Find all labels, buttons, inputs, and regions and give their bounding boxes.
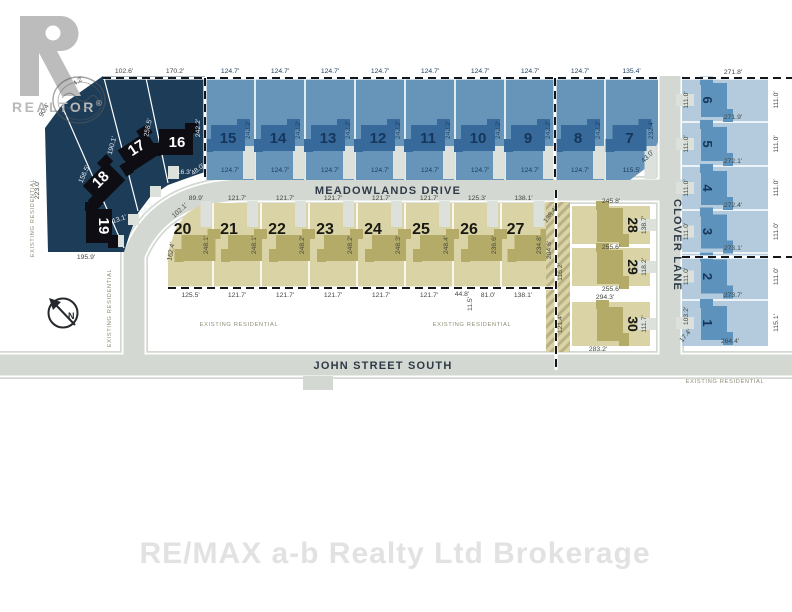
lot-number-1: 1 — [700, 319, 715, 326]
area-label-existing-residential-w2: EXISTING RESIDENTIAL — [107, 268, 113, 347]
measurement-label: 124.7' — [321, 167, 339, 174]
measurement-label: 242.2' — [395, 121, 402, 139]
lot-number-28: 28 — [625, 217, 641, 233]
compass-n-label: N — [68, 311, 75, 321]
measurement-label: 125.5' — [181, 292, 199, 299]
measurement-label: 81.0' — [481, 292, 496, 299]
measurement-label: 111.0' — [683, 223, 690, 240]
measurement-label: 242.2' — [495, 121, 502, 139]
measurement-label: 111.0' — [683, 268, 690, 285]
measurement-label: 11.5' — [467, 297, 474, 311]
measurement-label: 255.6' — [602, 244, 620, 251]
measurement-label: 115.1' — [773, 314, 780, 332]
lot-number-15: 15 — [220, 130, 237, 147]
road-stub — [303, 376, 333, 390]
measurement-label: 121.7' — [228, 195, 246, 202]
lot-number-3: 3 — [700, 228, 715, 235]
driveway — [534, 201, 545, 227]
measurement-label: 242.2' — [595, 121, 602, 139]
measurement-label: 234.8' — [536, 236, 543, 254]
measurement-label: 124.7' — [371, 68, 389, 75]
measurement-label: 271.8' — [724, 69, 742, 76]
driveway — [439, 201, 450, 227]
lot-number-30: 30 — [625, 316, 641, 332]
measurement-label: 121.7' — [228, 292, 246, 299]
measurement-label: 283.2' — [589, 346, 607, 353]
area-label-existing-residential-s2: EXISTING RESIDENTIAL — [433, 322, 512, 328]
lot-number-9: 9 — [524, 130, 532, 147]
measurement-label: 121.7' — [276, 195, 294, 202]
measurement-label: 242.2' — [195, 119, 202, 137]
lot-number-8: 8 — [574, 130, 582, 147]
measurement-label: 121.7' — [420, 292, 438, 299]
measurement-label: 271.9' — [724, 114, 742, 121]
measurement-label: 248.2' — [299, 236, 306, 254]
measurement-label: 242.2' — [295, 121, 302, 139]
measurement-label: 232.4' — [648, 121, 655, 139]
measurement-label: 124.7' — [521, 68, 539, 75]
measurement-label: 121.7' — [372, 292, 390, 299]
measurement-label: 16.3' — [177, 169, 192, 176]
measurement-label: 170.2' — [166, 68, 184, 75]
measurement-label: 111.0' — [683, 91, 690, 108]
measurement-label: 272.1' — [724, 158, 742, 165]
measurement-label: 294.3' — [596, 294, 614, 301]
measurement-label: 124.7' — [271, 68, 289, 75]
measurement-label: 242.2' — [245, 121, 252, 139]
measurement-label: 124.7' — [271, 167, 289, 174]
area-label-existing-residential-w1: EXISTING RESIDENTIAL — [30, 178, 36, 257]
driveway — [150, 186, 161, 197]
lot-number-21: 21 — [220, 221, 238, 238]
lot-number-26: 26 — [460, 221, 478, 238]
measurement-label: 124.7' — [371, 167, 389, 174]
driveway — [128, 214, 139, 225]
lot-number-20: 20 — [174, 221, 192, 238]
area-label-existing-residential-s1: EXISTING RESIDENTIAL — [200, 322, 279, 328]
measurement-label: 124.7' — [421, 167, 439, 174]
measurement-label: 111.0' — [773, 135, 780, 152]
measurement-label: 138.1' — [514, 195, 532, 202]
lot-number-10: 10 — [470, 130, 487, 147]
north-compass: N — [49, 298, 78, 328]
measurement-label: 248.1' — [203, 236, 210, 254]
measurement-label: 115.5' — [623, 167, 641, 174]
lot-number-6: 6 — [700, 96, 715, 103]
lot-number-4: 4 — [700, 184, 715, 192]
measurement-label: 111.7' — [641, 315, 648, 332]
lot-number-12: 12 — [370, 130, 387, 147]
lot-number-7: 7 — [625, 130, 633, 147]
measurement-label: 204.6' — [546, 241, 553, 259]
driveway — [343, 201, 354, 227]
measurement-label: 264.4' — [721, 338, 739, 345]
driveway — [247, 201, 258, 227]
measurement-label: 103.2' — [683, 307, 690, 325]
realtor-r-counter — [46, 26, 61, 41]
measurement-label: 124.7' — [221, 167, 239, 174]
measurement-label: 124.7' — [321, 68, 339, 75]
measurement-label: 124.7' — [421, 68, 439, 75]
measurement-label: 111.0' — [773, 268, 780, 285]
measurement-label: 195.9' — [77, 254, 95, 261]
measurement-label: 248.3' — [395, 236, 402, 254]
measurement-label: 111.0' — [773, 179, 780, 196]
site-plan-svg: 1514131211109871617181920212223242526272… — [0, 0, 792, 612]
measurement-label: 135.4' — [622, 68, 640, 75]
measurement-label: 111.0' — [773, 223, 780, 240]
measurement-label: 248.2' — [347, 236, 354, 254]
measurement-label: 124.7' — [571, 68, 589, 75]
street-label-john: JOHN STREET SOUTH — [314, 360, 453, 372]
lot-number-11: 11 — [420, 130, 436, 147]
measurement-label: 242.2' — [445, 121, 452, 139]
driveway — [391, 201, 402, 227]
measurement-label: 273.7' — [724, 292, 742, 299]
measurement-label: 272.4' — [724, 202, 742, 209]
lot-number-19: 19 — [95, 218, 112, 235]
street-label-clover: CLOVER LANE — [671, 199, 683, 291]
lot-number-13: 13 — [320, 130, 337, 147]
measurement-label: 121.7' — [276, 292, 294, 299]
measurement-label: 124.7' — [571, 167, 589, 174]
measurement-label: 111.0' — [773, 91, 780, 108]
lot-number-2: 2 — [700, 273, 715, 280]
site-plan-canvas: 1514131211109871617181920212223242526272… — [0, 0, 792, 612]
measurement-label: 124.7' — [471, 167, 489, 174]
measurement-label: 242.2' — [545, 121, 552, 139]
measurement-label: 121.7' — [324, 292, 342, 299]
street-label-meadowlands: MEADOWLANDS DRIVE — [315, 185, 461, 197]
measurement-label: 248.1' — [251, 236, 258, 254]
driveway — [201, 201, 212, 227]
measurement-label: 44.8' — [455, 291, 470, 298]
realtor-logo: REALTOR® — [12, 16, 105, 123]
lot-number-27: 27 — [507, 221, 525, 238]
measurement-label: 124.7' — [521, 167, 539, 174]
area-label-existing-residential-se: EXISTING RESIDENTIAL — [686, 379, 765, 385]
lot-number-23: 23 — [316, 221, 334, 238]
lot-number-5: 5 — [700, 140, 715, 147]
measurement-label: 89.9' — [189, 195, 204, 202]
lot-number-14: 14 — [270, 130, 287, 147]
measurement-label: 236.6' — [491, 236, 498, 254]
measurement-label: 102.6' — [115, 68, 133, 75]
measurement-label: 124.7' — [221, 68, 239, 75]
measurement-label: 248.4' — [443, 236, 450, 254]
measurement-label: 138.1' — [514, 292, 532, 299]
brokerage-watermark: RE/MAX a-b Realty Ltd Brokerage — [139, 537, 650, 570]
measurement-label: 138.7' — [641, 216, 648, 234]
measurement-label: 116.2' — [557, 263, 564, 281]
lot-number-24: 24 — [364, 221, 382, 238]
driveway — [295, 201, 306, 227]
measurement-label: 255.6' — [602, 286, 620, 293]
lot-number-29: 29 — [625, 259, 641, 275]
measurement-label: 242.2' — [345, 121, 352, 139]
measurement-label: 121.4' — [557, 315, 564, 333]
measurement-label: 118.2' — [641, 258, 648, 276]
measurement-label: 125.3' — [468, 195, 486, 202]
measurement-label: 124.7' — [471, 68, 489, 75]
measurement-label: 273.1' — [724, 245, 742, 252]
measurement-label: 111.0' — [683, 179, 690, 196]
lot-number-16: 16 — [169, 134, 186, 151]
measurement-label: 111.0' — [683, 135, 690, 152]
driveway — [487, 201, 498, 227]
measurement-label: 245.8' — [602, 198, 620, 205]
lot-number-25: 25 — [412, 221, 430, 238]
lot-number-22: 22 — [268, 221, 286, 238]
